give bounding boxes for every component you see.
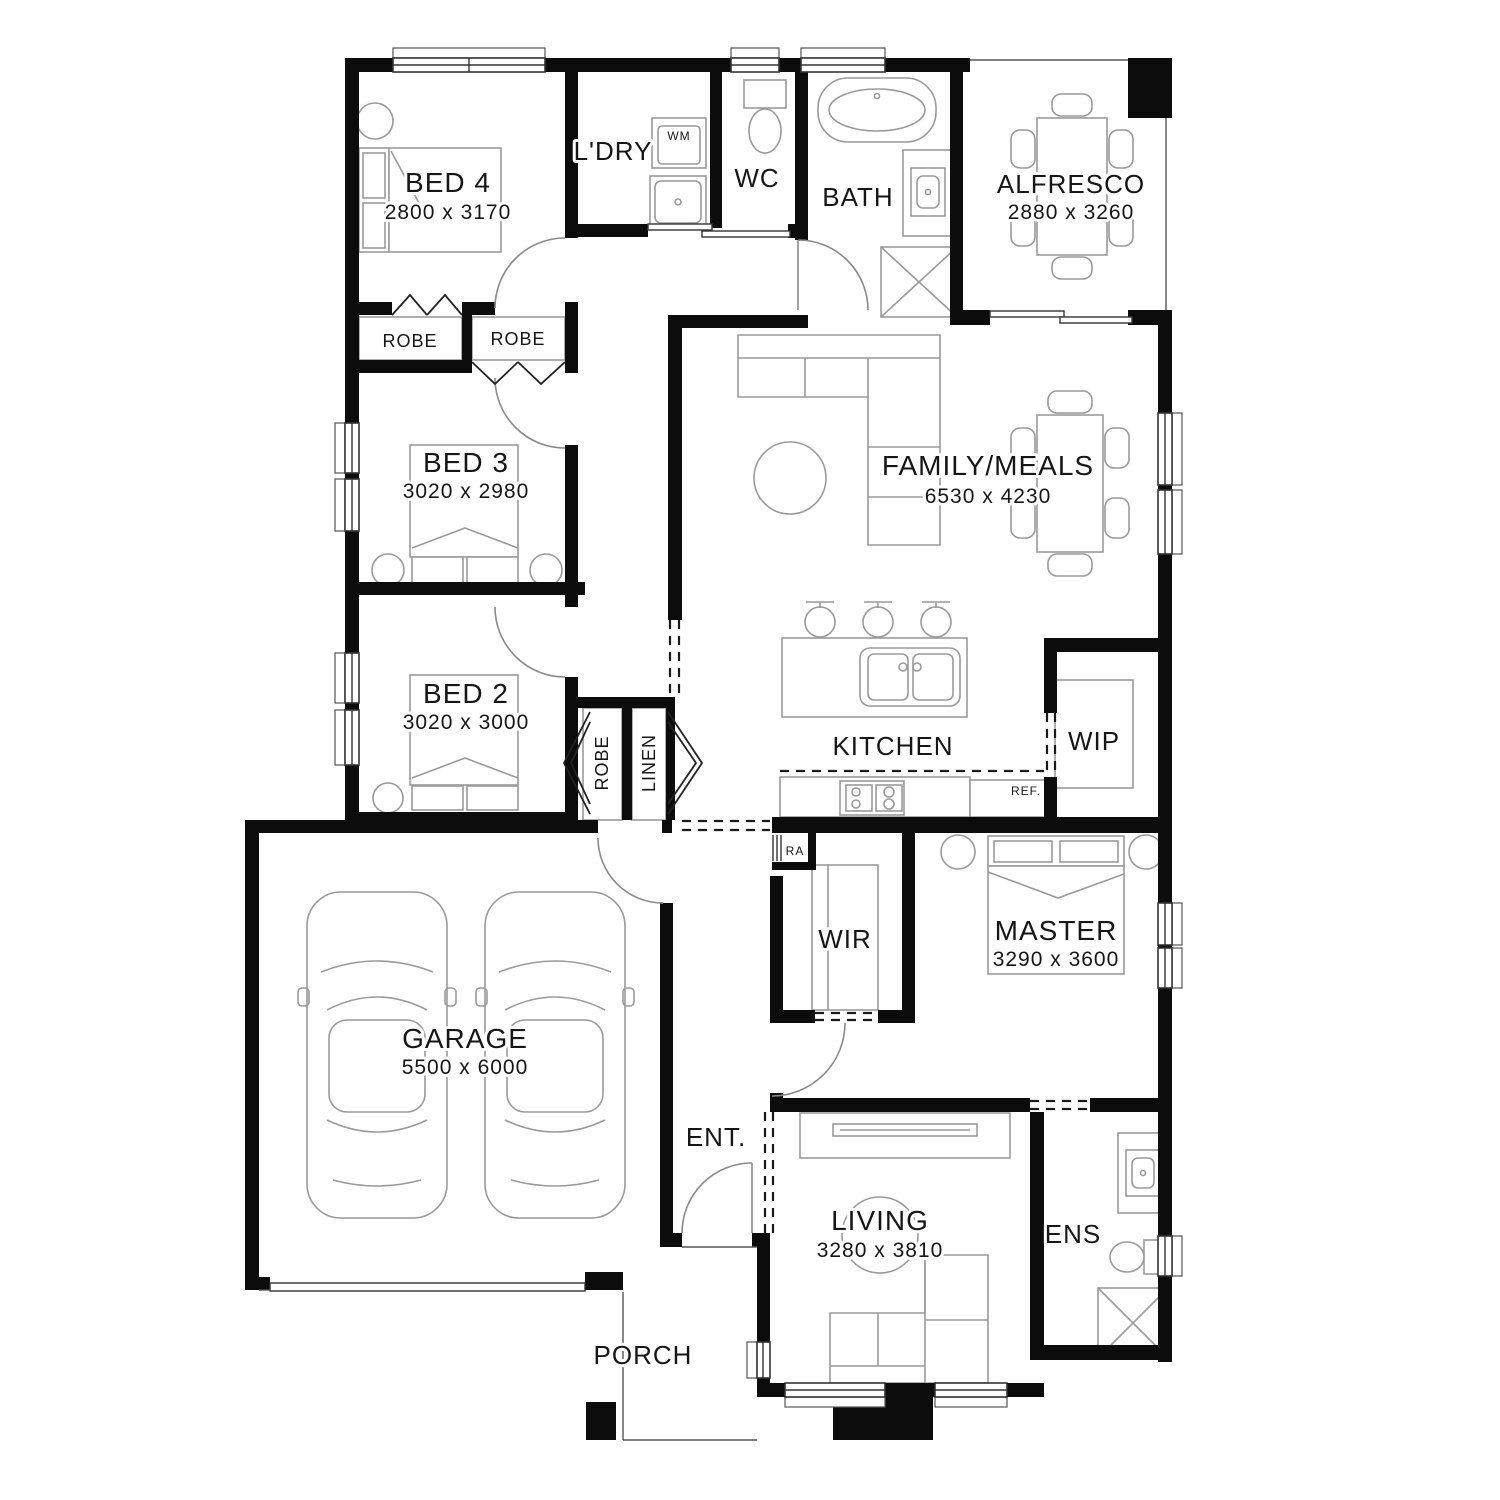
- label-ent: ENT.: [686, 1122, 746, 1152]
- label-wir: WIR: [818, 924, 872, 954]
- label-bed3-dims: 3020 x 2980: [403, 480, 530, 503]
- label-wc: WC: [734, 163, 779, 193]
- furniture-kitchen: [780, 602, 1045, 817]
- label-ens: ENS: [1045, 1219, 1101, 1249]
- label-bed4-name: BED 4: [405, 167, 491, 198]
- label-bath: BATH: [822, 182, 893, 212]
- label-robe-hall: ROBE: [592, 735, 612, 790]
- label-living-dims: 3280 x 3810: [817, 1239, 944, 1262]
- label-bed4-dims: 2800 x 3170: [385, 201, 512, 224]
- return-air-vent: [773, 835, 781, 861]
- label-master-name: MASTER: [995, 915, 1118, 946]
- label-wm: WM: [667, 129, 690, 143]
- label-porch: PORCH: [594, 1340, 693, 1370]
- slab-edges: [259, 60, 1166, 1440]
- label-garage-name: GARAGE: [402, 1023, 528, 1054]
- label-alfresco-dims: 2880 x 3260: [1008, 201, 1135, 224]
- floor-plan: BED 4 2800 x 3170 L'DRY WM WC BATH ALFRE…: [0, 0, 1500, 1500]
- label-robe-bed3: ROBE: [490, 329, 545, 349]
- label-garage-dims: 5500 x 6000: [402, 1056, 529, 1079]
- label-living-name: LIVING: [831, 1205, 929, 1236]
- label-ref: REF.: [1011, 784, 1041, 798]
- label-bed2-dims: 3020 x 3000: [403, 711, 530, 734]
- label-family-dims: 6530 x 4230: [925, 485, 1052, 508]
- label-ldry: L'DRY: [574, 136, 653, 166]
- label-master-dims: 3290 x 3600: [993, 948, 1120, 971]
- label-linen: LINEN: [639, 734, 659, 792]
- label-robe-bed4: ROBE: [382, 331, 437, 351]
- label-bed2-name: BED 2: [423, 678, 509, 709]
- label-ra: RA: [786, 844, 805, 858]
- furniture-wc-toilet: [744, 80, 786, 153]
- label-wip: WIP: [1068, 726, 1120, 756]
- label-alfresco-name: ALFRESCO: [997, 169, 1145, 199]
- label-family-name: FAMILY/MEALS: [882, 450, 1094, 481]
- label-bed3-name: BED 3: [423, 447, 509, 478]
- label-kitchen: KITCHEN: [832, 731, 953, 761]
- furniture-garage-cars: [298, 892, 634, 1218]
- walls: [245, 58, 1172, 1440]
- floor-plan-drawing: BED 4 2800 x 3170 L'DRY WM WC BATH ALFRE…: [0, 0, 1500, 1500]
